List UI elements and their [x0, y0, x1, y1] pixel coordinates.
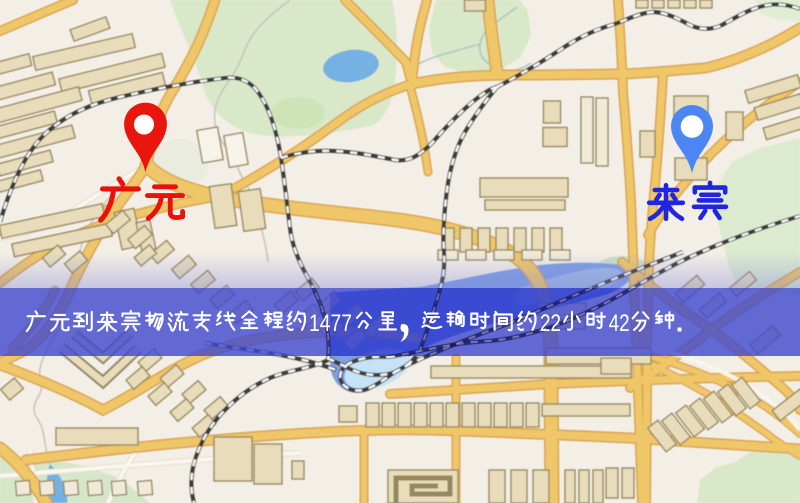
svg-text:1477: 1477 — [309, 310, 352, 337]
svg-text:42: 42 — [609, 310, 630, 337]
svg-text:22: 22 — [540, 310, 561, 337]
